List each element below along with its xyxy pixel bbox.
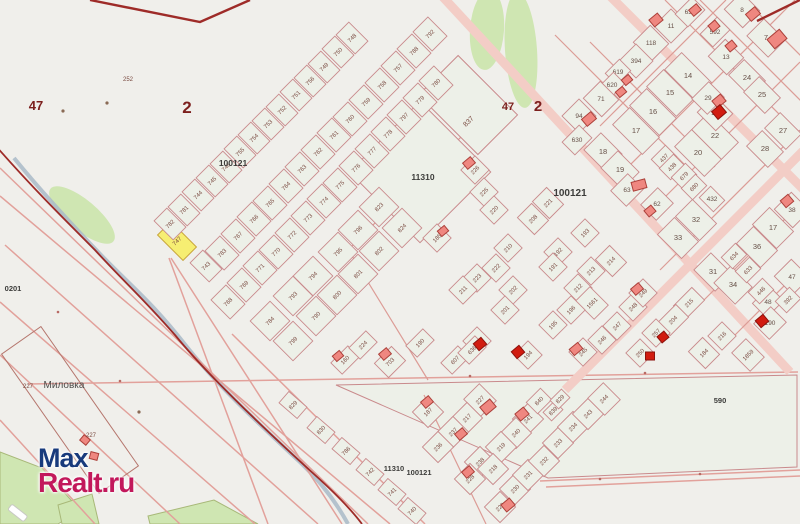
svg-text:394: 394	[631, 58, 642, 65]
svg-text:630: 630	[572, 137, 583, 144]
svg-text:20: 20	[694, 148, 702, 157]
building-dark	[646, 352, 655, 360]
svg-text:15: 15	[666, 88, 674, 97]
svg-text:432: 432	[707, 196, 718, 203]
road-marker	[57, 311, 60, 314]
svg-text:62: 62	[653, 201, 661, 208]
svg-text:22: 22	[711, 131, 719, 140]
svg-text:19: 19	[616, 165, 624, 174]
map-canvas[interactable]: 7477827817447457467557547537527517567497…	[0, 0, 800, 524]
svg-text:8: 8	[740, 7, 744, 14]
svg-text:36: 36	[753, 242, 761, 251]
map-label: 227	[86, 433, 97, 439]
svg-text:33: 33	[674, 233, 682, 242]
map-label: 47	[502, 101, 514, 113]
road-marker	[469, 375, 472, 378]
svg-text:32: 32	[692, 215, 700, 224]
logo-realt: Realt.ru	[38, 471, 134, 496]
svg-text:47: 47	[788, 274, 796, 281]
map-label: 100121	[219, 158, 248, 168]
cadastral-map[interactable]: 7477827817447457467557547537527517567497…	[0, 0, 800, 524]
svg-text:17: 17	[769, 223, 777, 232]
map-label: 590	[714, 396, 727, 405]
svg-text:13: 13	[722, 54, 730, 61]
svg-text:71: 71	[597, 96, 605, 103]
map-label: 227	[23, 384, 34, 390]
map-label: 100121	[406, 468, 431, 477]
map-label: 11310	[384, 464, 404, 473]
map-label: 100121	[553, 188, 587, 199]
svg-text:29: 29	[704, 95, 712, 102]
map-label: 2	[182, 98, 191, 117]
svg-text:620: 620	[607, 82, 618, 89]
point-marker	[105, 101, 108, 104]
maxrealt-logo[interactable]: Max Realt.ru	[38, 447, 134, 495]
svg-text:18: 18	[599, 147, 607, 156]
svg-text:31: 31	[709, 267, 717, 276]
svg-text:28: 28	[761, 144, 769, 153]
road-marker	[119, 380, 122, 383]
svg-text:63: 63	[623, 187, 631, 194]
map-label: 47	[29, 98, 43, 113]
svg-text:27: 27	[779, 126, 787, 135]
svg-text:11: 11	[668, 23, 675, 30]
svg-text:14: 14	[684, 71, 692, 80]
map-label: Миловка	[44, 380, 85, 391]
map-label: 0201	[5, 284, 22, 293]
road-marker	[599, 478, 602, 481]
point-marker	[137, 410, 140, 413]
svg-text:38: 38	[788, 207, 796, 214]
svg-text:118: 118	[646, 40, 657, 47]
svg-text:34: 34	[729, 280, 737, 289]
map-label: 11310	[411, 172, 434, 182]
map-label: 252	[123, 77, 134, 83]
point-marker	[61, 109, 64, 112]
svg-text:24: 24	[743, 73, 751, 82]
svg-text:16: 16	[649, 107, 657, 116]
svg-text:17: 17	[632, 126, 640, 135]
road-marker	[699, 473, 702, 476]
svg-text:48: 48	[764, 299, 772, 306]
map-label: 2	[534, 98, 542, 115]
road-marker	[644, 372, 647, 375]
svg-text:25: 25	[758, 90, 766, 99]
